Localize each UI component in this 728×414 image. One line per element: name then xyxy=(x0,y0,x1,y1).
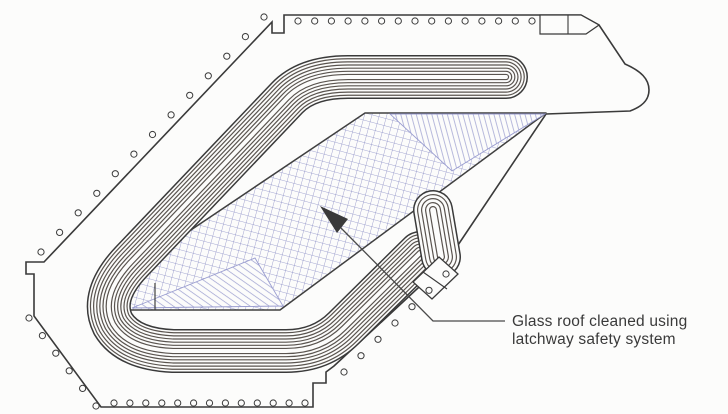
anchor-post-circle xyxy=(149,131,155,137)
anchor-post-circle xyxy=(143,400,149,406)
anchor-post-circle xyxy=(242,34,248,40)
anchor-post-circle xyxy=(426,287,432,293)
anchor-post-circle xyxy=(224,53,230,59)
anchor-post-circle xyxy=(445,18,451,24)
anchor-post-circle xyxy=(127,400,133,406)
roof-plan-figure: Glass roof cleaned using latchway safety… xyxy=(0,0,728,414)
anchor-post-circle xyxy=(375,336,381,342)
inner-roof-band-finger xyxy=(433,210,441,257)
anchor-post-circle xyxy=(392,320,398,326)
anchor-post-circle xyxy=(26,315,32,321)
anchor-post-circle xyxy=(462,18,468,24)
anchor-post-circle xyxy=(93,403,99,409)
annotation-line-2: latchway safety system xyxy=(512,331,676,348)
anchor-post-circle xyxy=(66,368,72,374)
anchor-post-circle xyxy=(302,400,308,406)
anchor-post-circle xyxy=(395,18,401,24)
anchor-post-circle xyxy=(443,271,449,277)
anchor-post-circle xyxy=(38,249,44,255)
anchor-post-circle xyxy=(312,18,318,24)
anchor-post-circle xyxy=(205,73,211,79)
anchor-post-circle xyxy=(187,92,193,98)
anchor-post-circle xyxy=(39,333,45,339)
annotation-line-1: Glass roof cleaned using xyxy=(512,313,687,330)
anchor-post-circle xyxy=(295,18,301,24)
anchor-post-circle xyxy=(159,400,165,406)
rooftop-vent-detail xyxy=(540,15,599,34)
anchor-post-circle xyxy=(57,229,63,235)
anchor-post-circle xyxy=(261,14,267,20)
anchor-post-circle xyxy=(131,151,137,157)
scanned-roof-plan-page: Glass roof cleaned using latchway safety… xyxy=(0,0,728,414)
anchor-post-circle xyxy=(53,350,59,356)
anchor-post-circle xyxy=(379,18,385,24)
anchor-post-circle xyxy=(286,400,292,406)
anchor-post-circle xyxy=(328,18,334,24)
anchor-post-circle xyxy=(168,112,174,118)
anchor-post-circle xyxy=(529,18,535,24)
anchor-post-circle xyxy=(111,400,117,406)
anchor-post-circle xyxy=(175,400,181,406)
anchor-post-circle xyxy=(496,18,502,24)
anchor-post-circle xyxy=(80,385,86,391)
anchor-post-circle xyxy=(512,18,518,24)
anchor-post-circle xyxy=(94,190,100,196)
anchor-post-circle xyxy=(362,18,368,24)
anchor-post-circle xyxy=(112,171,118,177)
anchor-post-circle xyxy=(358,353,364,359)
anchor-post-circle xyxy=(409,304,415,310)
anchor-post-circle xyxy=(479,18,485,24)
anchor-post-circle xyxy=(429,18,435,24)
anchor-post-circle xyxy=(222,400,228,406)
anchor-post-circle xyxy=(345,18,351,24)
anchor-post-circle xyxy=(75,210,81,216)
anchor-post-circle xyxy=(191,400,197,406)
anchor-post-circle xyxy=(341,369,347,375)
anchor-post-circle xyxy=(206,400,212,406)
anchor-post-circle xyxy=(254,400,260,406)
anchor-post-circle xyxy=(270,400,276,406)
anchor-post-circle xyxy=(412,18,418,24)
anchor-post-circle xyxy=(238,400,244,406)
